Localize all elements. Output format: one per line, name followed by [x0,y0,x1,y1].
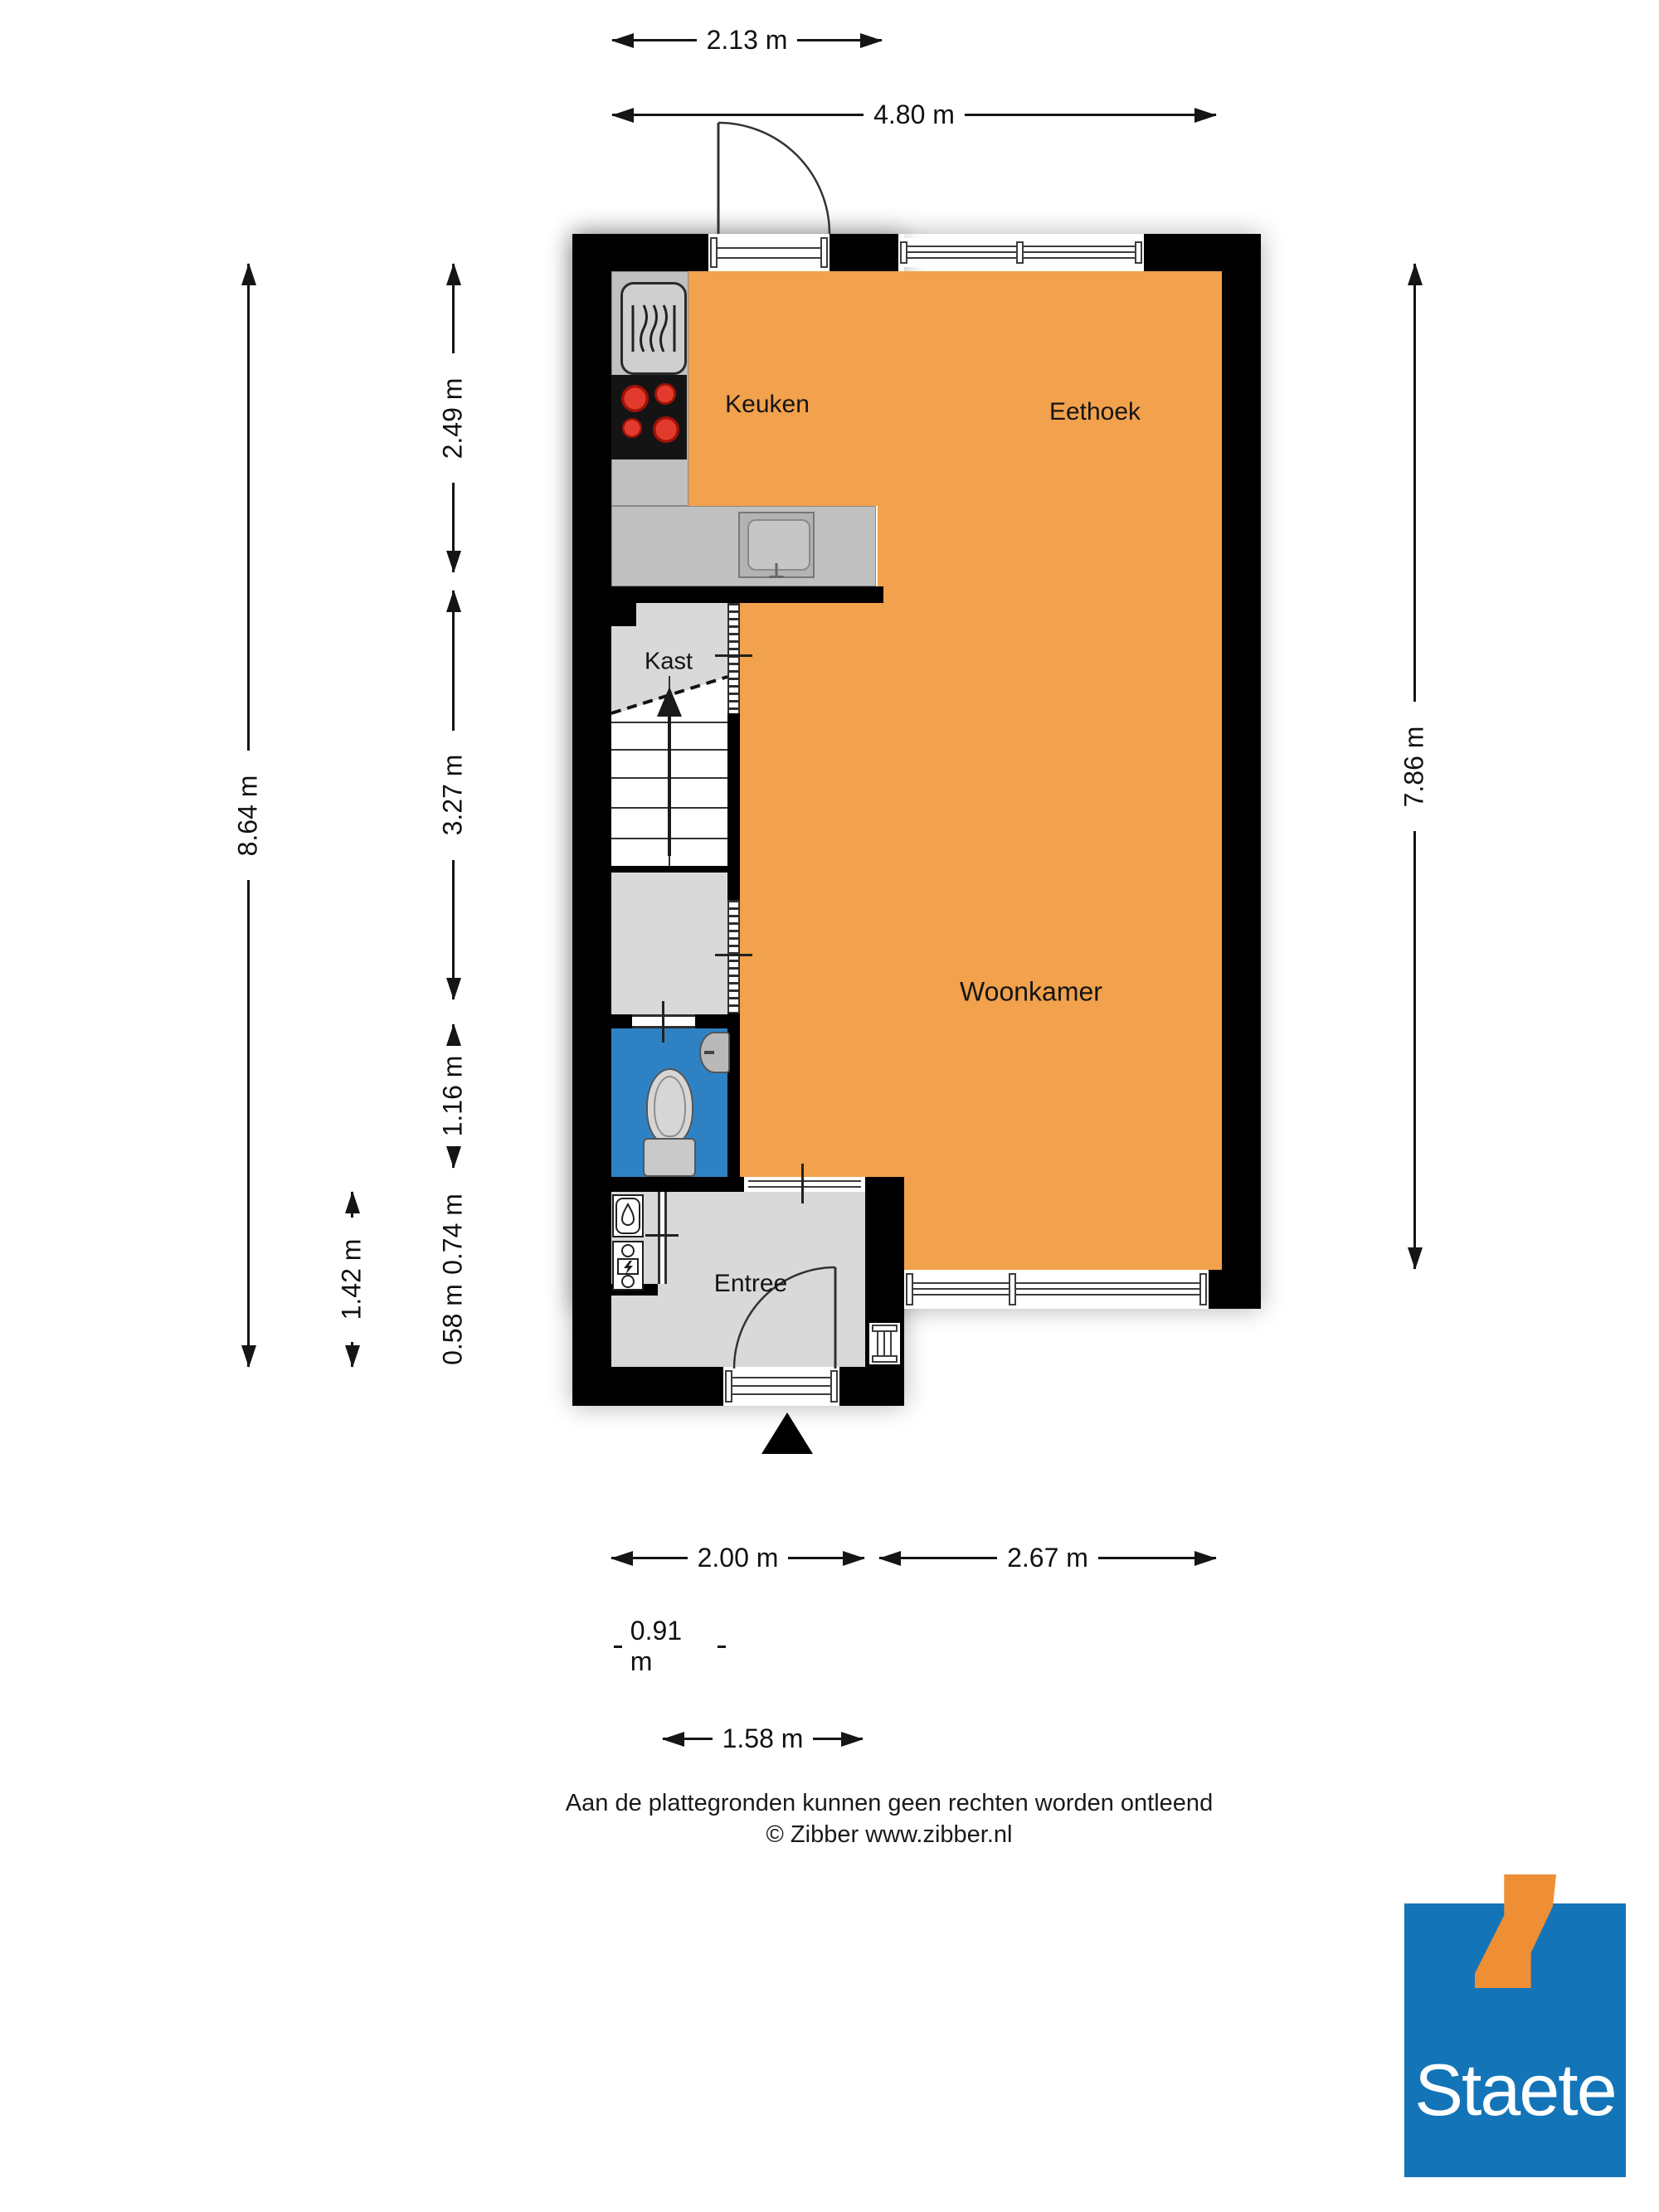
wall-entree-bottom-left [572,1367,723,1406]
floor-woonkamer-south [904,1177,1222,1270]
wall-top-pier [829,234,898,271]
meterkast-door [658,1192,667,1284]
stair-tread [611,807,727,809]
front-door-opening [723,1367,839,1406]
door-tick [715,954,752,956]
floorplan-canvas: Keuken Eethoek Woonkamer Kast Entree 2.1… [0,0,1659,2212]
wall-below-toilet [572,1177,744,1192]
entrance-arrow-icon [761,1412,813,1454]
dim-top-outer: 4.80 m [612,100,1216,129]
wall-kast-notch [611,586,636,626]
burner-icon [621,385,649,412]
corner-sink-icon [699,1032,730,1073]
window-mullion [1016,241,1024,264]
window-top [898,238,1144,267]
room-label-kast: Kast [645,649,693,676]
wall-entree-bottom-right [839,1367,904,1406]
dim-top-inner: 2.13 m [612,25,882,55]
dim-left-142: 1.42 m [337,1192,367,1367]
dim-bottom-200: 2.00 m [611,1543,864,1573]
toilet-icon [646,1068,693,1145]
stair-tread [611,838,727,839]
wall-toilet-top-left [611,1014,632,1028]
dim-left-327: 3.27 m [438,591,468,999]
room-label-keuken: Keuken [725,391,810,419]
dim-left-outer: 8.64 m [233,264,263,1367]
cooktop-icon [611,375,687,459]
wall-bottom-right-corner [1209,1270,1261,1309]
window-interior-entree [744,1177,865,1192]
stair-tread [611,749,727,751]
back-door-opening [708,234,829,271]
stair-tread [611,777,727,779]
dim-bottom-158: 1.58 m [663,1723,863,1753]
dim-bottom-091: 0.91 m [614,1631,726,1661]
staete-logo-text: Staete [1404,1903,1626,2177]
floor-hall [611,873,727,1014]
room-label-eethoek: Eethoek [1049,398,1141,426]
burner-icon [654,383,676,405]
stair-tread [611,722,727,723]
dim-right-outer: 7.86 m [1399,264,1429,1269]
oven-icon [620,282,687,375]
window-mullion [1009,1273,1016,1305]
hall-door [727,900,740,1014]
sink-icon [738,512,815,578]
wall-right [1222,234,1261,1309]
electric-meter-icon [612,1241,644,1291]
dim-left-249: 2.49 m [438,264,468,572]
staete-logo: Staete [1377,1874,1642,2212]
floor-eethoek [688,271,1222,506]
back-door-arc [718,123,829,234]
window-tick [801,1164,804,1203]
floor-strip-right-of-counter [878,506,1222,603]
disclaimer-text: Aan de plattegronden kunnen geen rechten… [566,1790,1213,1817]
wall-stairs-bottom [611,866,730,873]
room-label-entree: Entree [714,1270,787,1298]
water-heater-icon [612,1194,644,1237]
window-bottom [904,1270,1209,1309]
burner-icon [622,418,642,438]
toilet-tank-icon [643,1138,696,1177]
door-tick [645,1234,679,1237]
dim-left-074: 0.74 m [438,1194,469,1275]
dim-bottom-267: 2.67 m [879,1543,1216,1573]
floor-woonkamer [740,603,1222,1177]
copyright-text: © Zibber www.zibber.nl [766,1821,1013,1849]
wall-bottom-window-left [888,1270,904,1309]
kast-door [727,603,740,713]
dim-left-058: 0.58 m [438,1284,469,1365]
burner-icon [653,416,679,443]
door-tick [662,1001,664,1043]
window-entree-side [869,1323,900,1364]
door-tick [715,654,752,657]
dim-left-116: 1.16 m [438,1024,468,1168]
room-label-woonkamer: Woonkamer [960,977,1102,1008]
wall-left [572,234,611,1406]
